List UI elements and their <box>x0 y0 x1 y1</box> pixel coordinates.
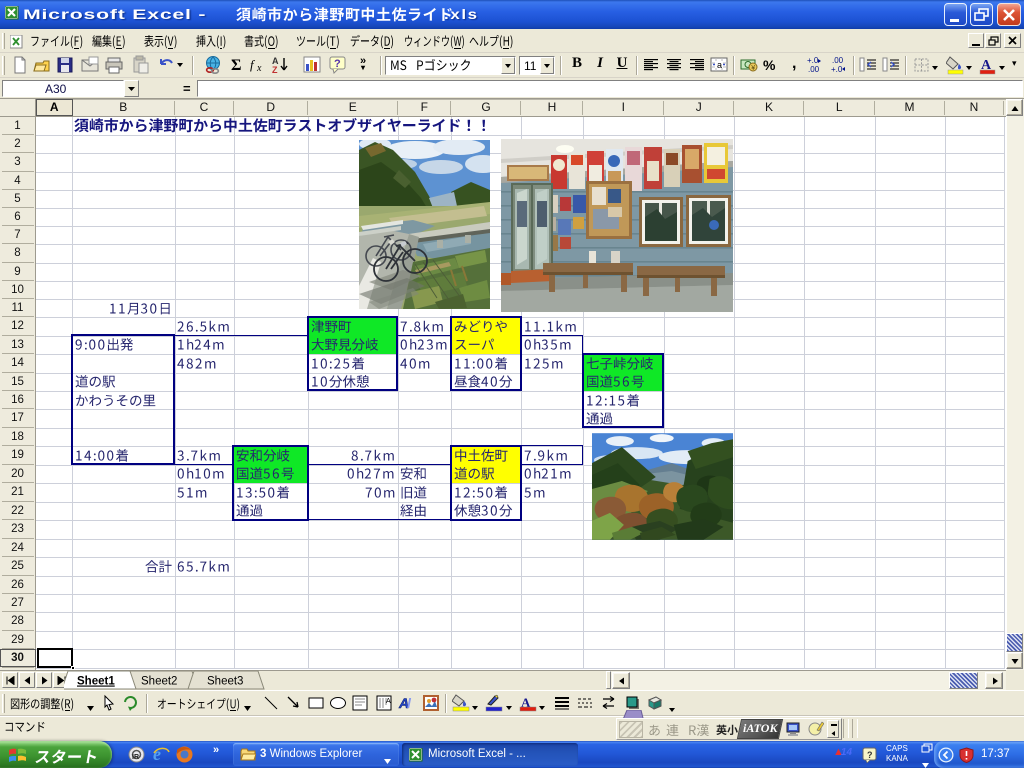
svg-text:x: x <box>256 63 262 74</box>
svg-text:+.0: +.0 <box>807 56 819 65</box>
svg-text:?: ? <box>334 58 341 70</box>
svg-text:f: f <box>250 57 256 72</box>
svg-text:e: e <box>153 744 161 764</box>
svg-text:Sheet1: Sheet1 <box>77 676 115 688</box>
svg-text:.00: .00 <box>832 56 844 65</box>
svg-text:Z: Z <box>272 65 278 75</box>
svg-text:a: a <box>717 60 722 70</box>
svg-text:Σ: Σ <box>231 57 241 74</box>
svg-text:A: A <box>386 698 391 705</box>
svg-text:l: l <box>407 695 412 711</box>
svg-text:Sheet2: Sheet2 <box>141 676 177 688</box>
svg-text:%: % <box>763 57 776 73</box>
svg-text:Sheet3: Sheet3 <box>207 676 243 688</box>
svg-text:+.0: +.0 <box>831 65 843 74</box>
svg-text:¥: ¥ <box>751 65 755 72</box>
svg-text:.00: .00 <box>808 65 820 74</box>
svg-text:?: ? <box>867 750 873 760</box>
svg-text:IR: IR <box>132 754 139 761</box>
svg-text:,: , <box>792 55 796 72</box>
